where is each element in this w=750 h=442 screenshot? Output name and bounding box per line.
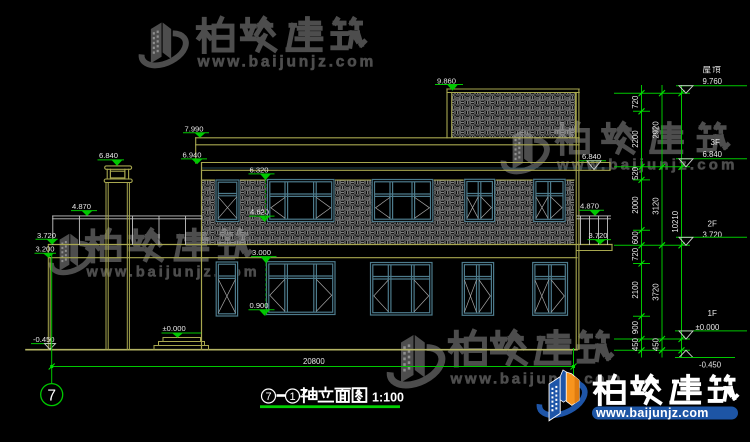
- svg-text:720: 720: [631, 247, 640, 261]
- svg-text:3F: 3F: [711, 138, 720, 147]
- svg-text:1:100: 1:100: [372, 391, 404, 405]
- svg-text:7: 7: [265, 391, 271, 403]
- svg-text:9.760: 9.760: [703, 77, 723, 86]
- svg-text:9.860: 9.860: [437, 76, 456, 85]
- svg-text:3.720: 3.720: [37, 231, 56, 240]
- svg-text:2100: 2100: [631, 281, 640, 299]
- svg-text:4.620: 4.620: [250, 207, 269, 216]
- svg-text:-0.450: -0.450: [699, 360, 722, 369]
- svg-text:3.000: 3.000: [252, 248, 271, 257]
- svg-text:10210: 10210: [671, 210, 680, 232]
- svg-text:20800: 20800: [303, 357, 325, 366]
- svg-text:2F: 2F: [708, 220, 717, 229]
- svg-text:4.870: 4.870: [72, 202, 91, 211]
- svg-text:6.840: 6.840: [582, 152, 601, 161]
- svg-text:7: 7: [47, 388, 56, 405]
- svg-text:6.840: 6.840: [703, 150, 723, 159]
- svg-text:3.720: 3.720: [703, 231, 723, 240]
- svg-text:±0.000: ±0.000: [163, 324, 186, 333]
- svg-text:3.720: 3.720: [589, 231, 608, 240]
- svg-text:6.320: 6.320: [250, 165, 269, 174]
- svg-text:3720: 3720: [652, 283, 661, 301]
- svg-text:1: 1: [289, 391, 295, 403]
- svg-text:7.990: 7.990: [185, 124, 204, 133]
- svg-text:450: 450: [631, 337, 640, 351]
- svg-text:www.baijunjz.com: www.baijunjz.com: [197, 54, 377, 71]
- svg-text:2920: 2920: [652, 121, 661, 139]
- svg-text:3.200: 3.200: [36, 245, 55, 254]
- svg-text:720: 720: [631, 95, 640, 109]
- svg-text:900: 900: [631, 320, 640, 334]
- svg-text:450: 450: [652, 337, 661, 351]
- svg-text:4.870: 4.870: [580, 202, 599, 211]
- svg-text:3120: 3120: [652, 197, 661, 215]
- svg-text:600: 600: [631, 231, 640, 245]
- svg-text:2000: 2000: [631, 196, 640, 214]
- svg-text:www.baijunjz.com: www.baijunjz.com: [595, 406, 709, 420]
- svg-text:2200: 2200: [631, 130, 640, 148]
- svg-text:6.840: 6.840: [99, 151, 118, 160]
- svg-text:6.940: 6.940: [183, 150, 202, 159]
- svg-text:520: 520: [631, 166, 640, 180]
- svg-text:1F: 1F: [708, 309, 717, 318]
